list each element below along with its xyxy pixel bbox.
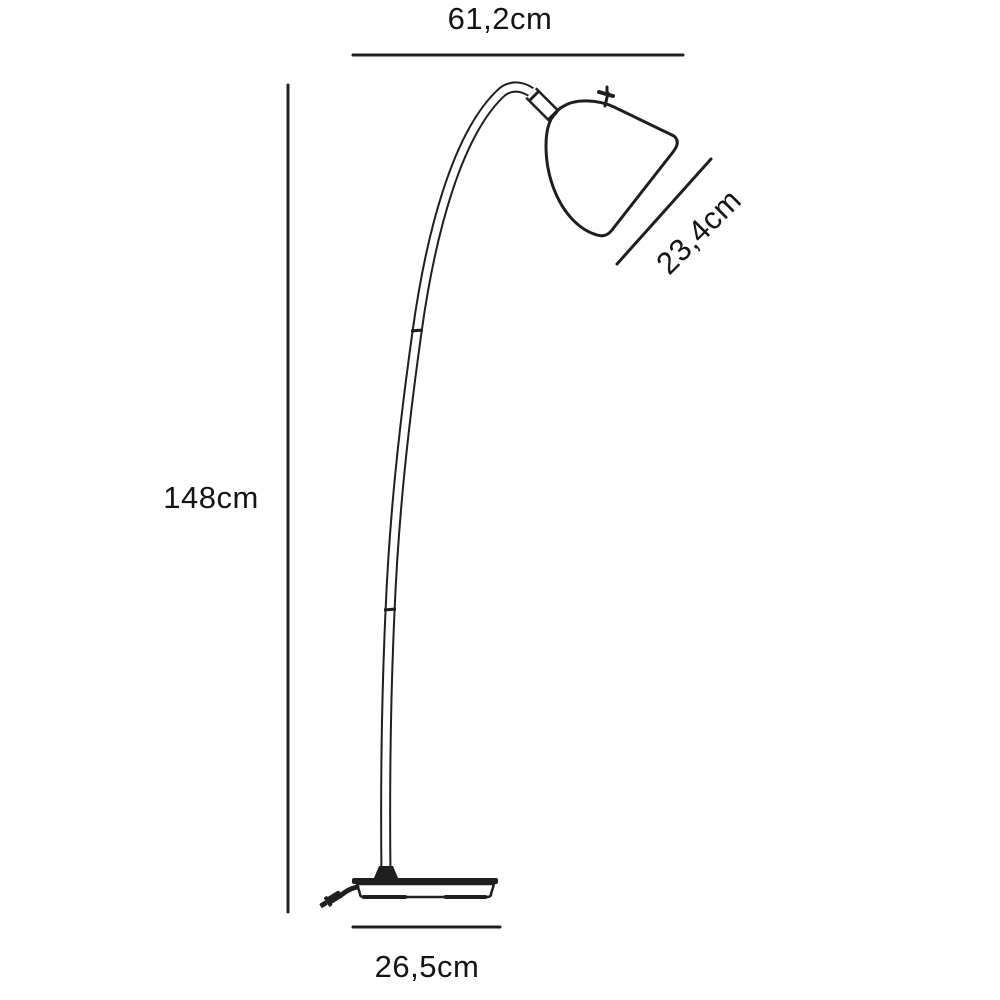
lamp-arm bbox=[384, 87, 531, 876]
base-foot-left bbox=[362, 895, 407, 899]
base-foot-right bbox=[444, 895, 487, 899]
lamp-arm-inner bbox=[386, 87, 531, 876]
power-plug bbox=[318, 889, 344, 911]
lamp-arm-outer bbox=[386, 87, 531, 876]
lamp-shade-outline bbox=[546, 101, 677, 236]
base-top-plate bbox=[352, 878, 498, 884]
arm-joint-lower bbox=[384, 609, 396, 610]
power-cord-group bbox=[318, 887, 357, 911]
floor-lamp-dimension-diagram: 61,2cm 148cm 23,4cm 26,5cm bbox=[0, 0, 1000, 1000]
lamp-base bbox=[352, 866, 498, 899]
dimension-label-base-width: 26,5cm bbox=[375, 949, 480, 984]
lamp-shade bbox=[546, 87, 677, 236]
pole-foot-flare bbox=[374, 866, 398, 878]
diagram-canvas: 61,2cm 148cm 23,4cm 26,5cm bbox=[0, 0, 1000, 1000]
dimension-label-shade-diagonal: 23,4cm bbox=[649, 182, 748, 281]
dimension-label-height: 148cm bbox=[163, 480, 259, 515]
arm-joint-upper bbox=[411, 330, 423, 331]
power-cord bbox=[340, 887, 357, 896]
dimension-label-top-width: 61,2cm bbox=[448, 1, 553, 36]
